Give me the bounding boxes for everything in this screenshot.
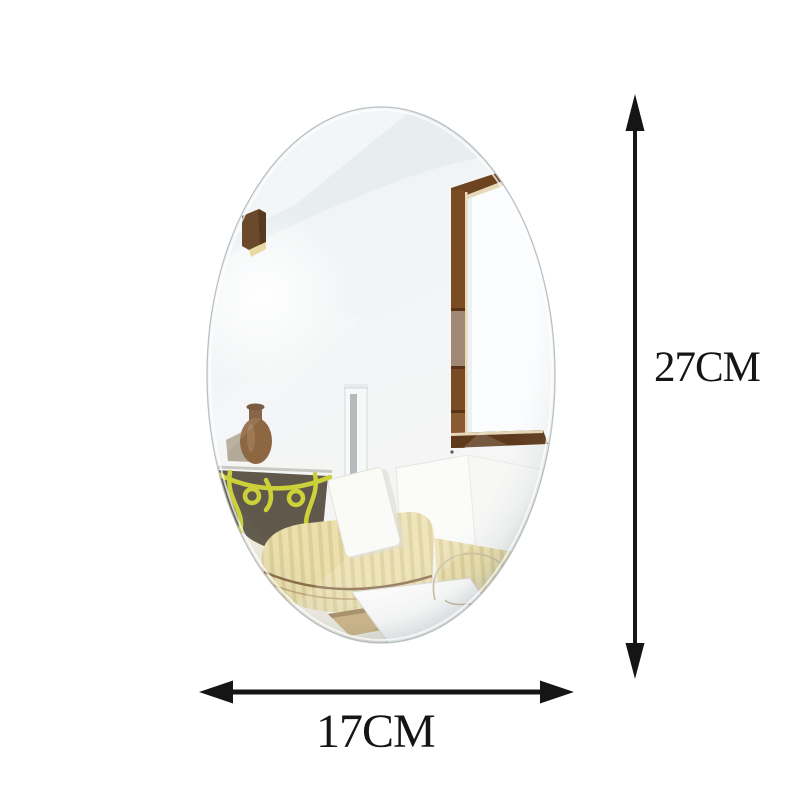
width-arrow-left-icon xyxy=(199,681,233,704)
height-arrow-down-icon xyxy=(626,643,645,679)
height-arrow xyxy=(626,94,645,679)
height-label: 27CM xyxy=(654,346,760,389)
width-arrow-right-icon xyxy=(540,681,574,704)
white-box xyxy=(514,582,549,610)
width-label: 17CM xyxy=(316,708,435,756)
product-image: 27CM 17CM xyxy=(0,0,800,800)
mirror-glass xyxy=(174,90,580,700)
mirror-illustration xyxy=(0,0,800,800)
height-arrow-up-icon xyxy=(626,94,645,131)
width-arrow xyxy=(199,681,574,704)
